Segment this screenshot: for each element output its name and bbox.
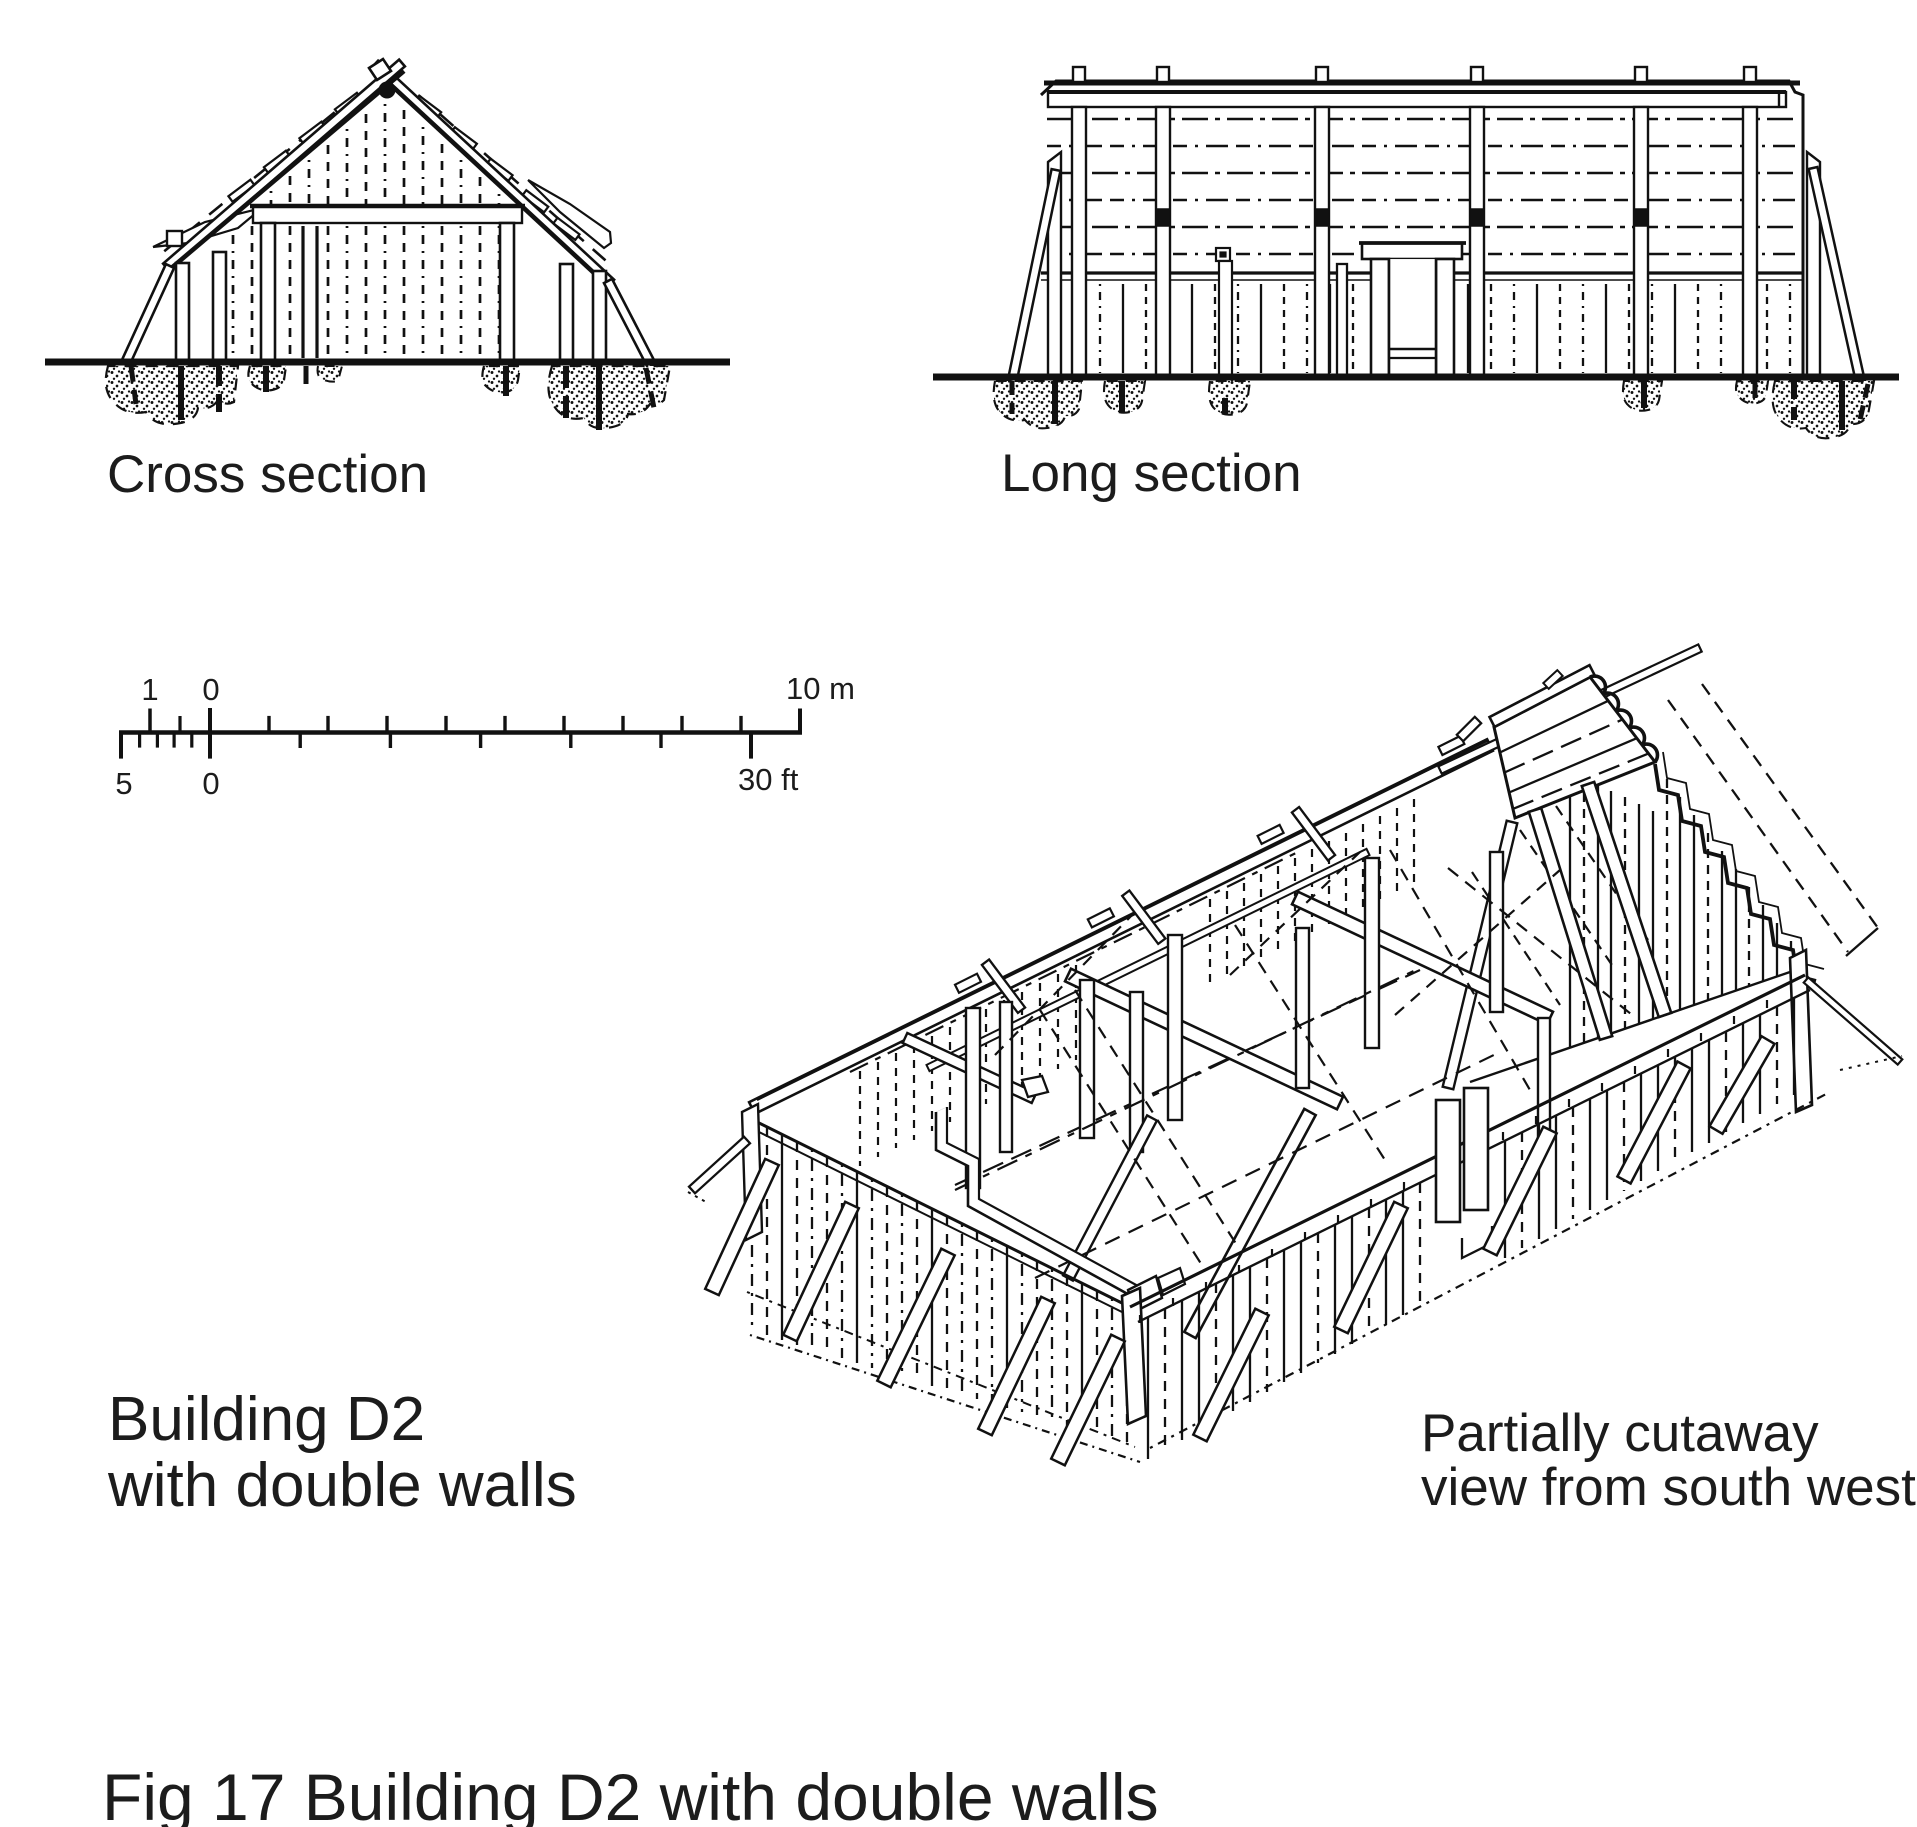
svg-text:1: 1 [141,672,158,707]
svg-text:Cross section: Cross section [107,445,428,504]
svg-text:Building D2: Building D2 [108,1385,425,1454]
svg-text:with double walls: with double walls [107,1451,577,1520]
svg-text:30 ft: 30 ft [738,762,799,797]
svg-text:0: 0 [202,672,219,707]
svg-text:view from south west: view from south west [1421,1458,1916,1517]
svg-text:0: 0 [202,766,219,801]
svg-text:5: 5 [115,766,132,801]
svg-text:Fig 17 Building D2 with double: Fig 17 Building D2 with double walls [102,1760,1159,1827]
svg-text:Long section: Long section [1001,444,1302,503]
svg-text:10 m: 10 m [786,671,855,706]
svg-text:Partially cutaway: Partially cutaway [1421,1404,1819,1463]
